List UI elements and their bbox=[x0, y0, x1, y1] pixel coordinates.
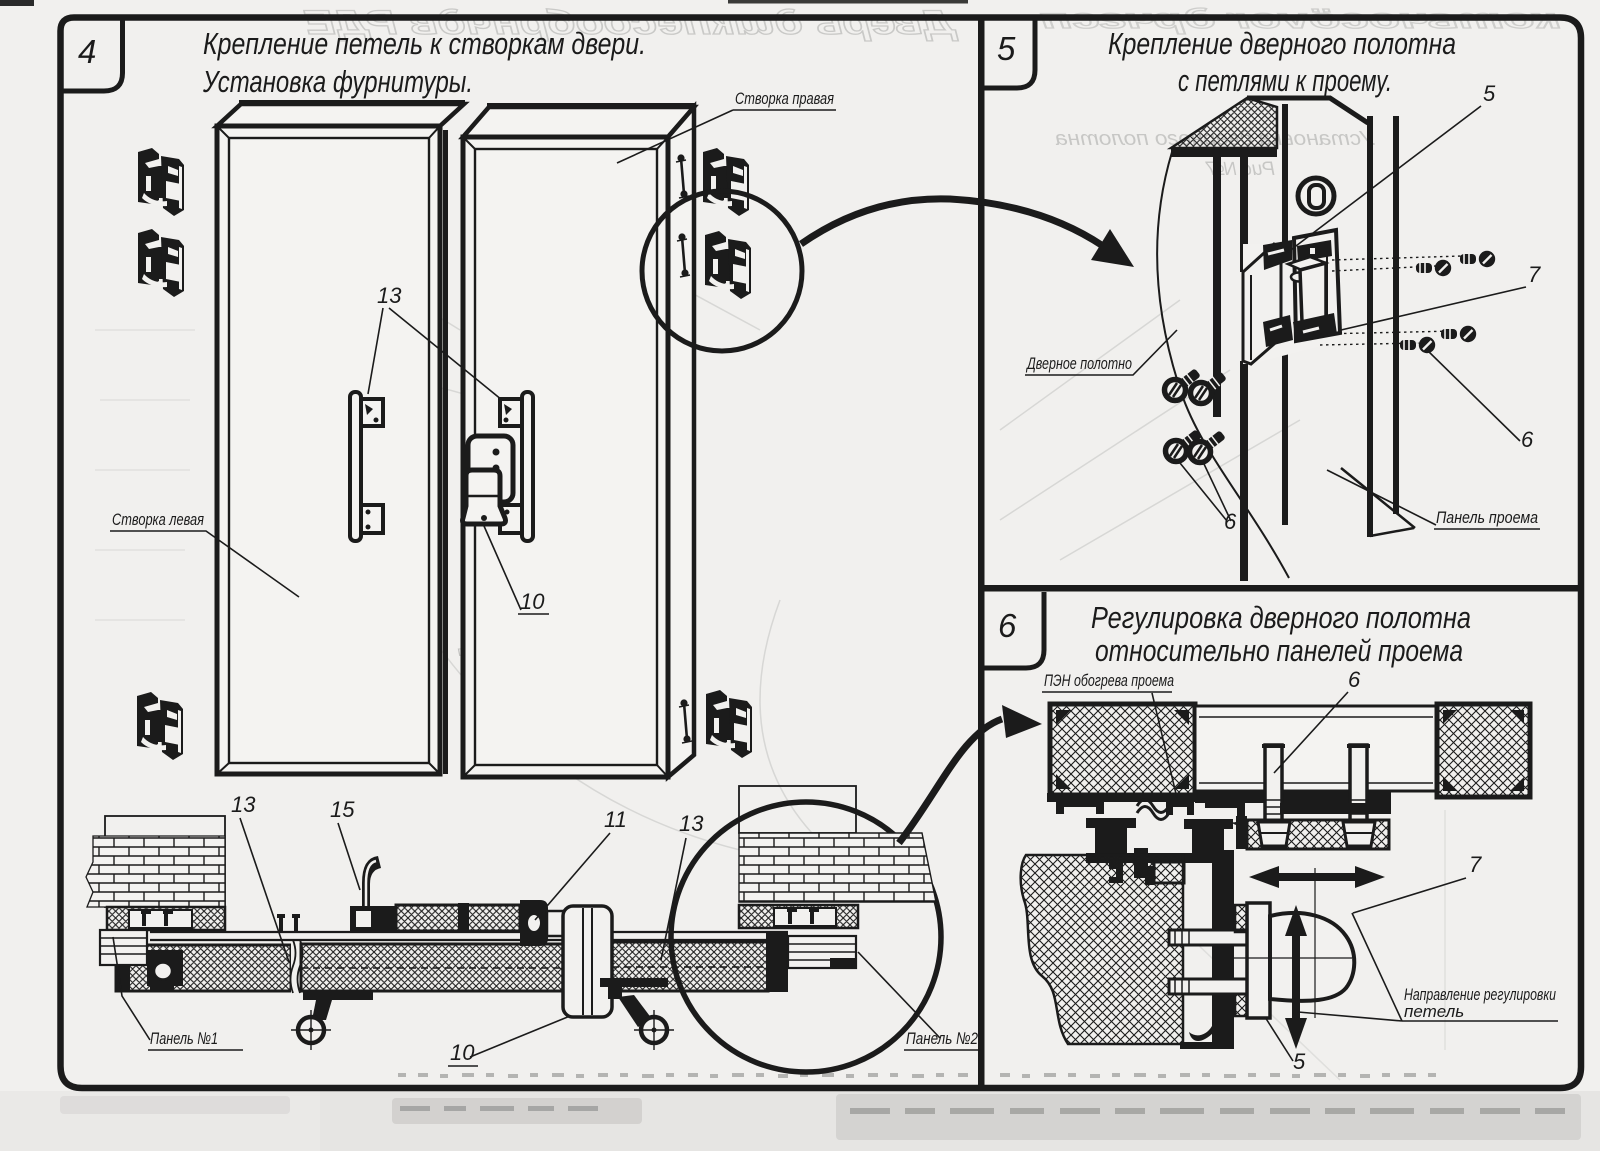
svg-text:10: 10 bbox=[450, 1040, 475, 1065]
svg-text:7: 7 bbox=[1469, 852, 1482, 877]
svg-text:6: 6 bbox=[1224, 509, 1237, 534]
svg-text:Установка фурнитуры.: Установка фурнитуры. bbox=[202, 64, 473, 99]
svg-text:5: 5 bbox=[1293, 1049, 1306, 1074]
svg-text:6: 6 bbox=[1348, 667, 1361, 692]
svg-text:13: 13 bbox=[679, 811, 704, 836]
svg-text:Панель №1: Панель №1 bbox=[150, 1029, 218, 1048]
svg-text:с петлями к проему.: с петлями к проему. bbox=[1178, 63, 1392, 98]
svg-text:15: 15 bbox=[330, 797, 355, 822]
svg-text:6: 6 bbox=[1521, 427, 1534, 452]
svg-text:Регулировка дверного полотна: Регулировка дверного полотна bbox=[1091, 600, 1471, 635]
svg-text:Створка левая: Створка левая bbox=[112, 510, 204, 529]
svg-text:4: 4 bbox=[78, 33, 96, 70]
svg-text:Дверное полотно: Дверное полотно bbox=[1026, 354, 1132, 373]
svg-text:5: 5 bbox=[997, 30, 1016, 67]
svg-text:Крепление петель к створкам дв: Крепление петель к створкам двери. bbox=[203, 26, 646, 61]
svg-text:петель: петель bbox=[1404, 1002, 1464, 1021]
svg-text:относительно панелей проема: относительно панелей проема bbox=[1095, 633, 1463, 668]
svg-text:Панель №2: Панель №2 bbox=[906, 1029, 978, 1048]
svg-text:5: 5 bbox=[1483, 81, 1496, 106]
svg-text:13: 13 bbox=[231, 792, 256, 817]
svg-text:6: 6 bbox=[998, 607, 1017, 644]
svg-text:ПЭН обогрева проема: ПЭН обогрева проема bbox=[1044, 671, 1174, 690]
svg-text:Крепление дверного полотна: Крепление дверного полотна bbox=[1108, 26, 1456, 61]
svg-text:13: 13 bbox=[377, 283, 402, 308]
svg-text:7: 7 bbox=[1528, 262, 1541, 287]
svg-text:11: 11 bbox=[604, 807, 627, 832]
svg-text:Створка правая: Створка правая bbox=[735, 89, 834, 108]
svg-text:10: 10 bbox=[520, 589, 545, 614]
svg-text:Панель проема: Панель проема bbox=[1436, 508, 1538, 527]
